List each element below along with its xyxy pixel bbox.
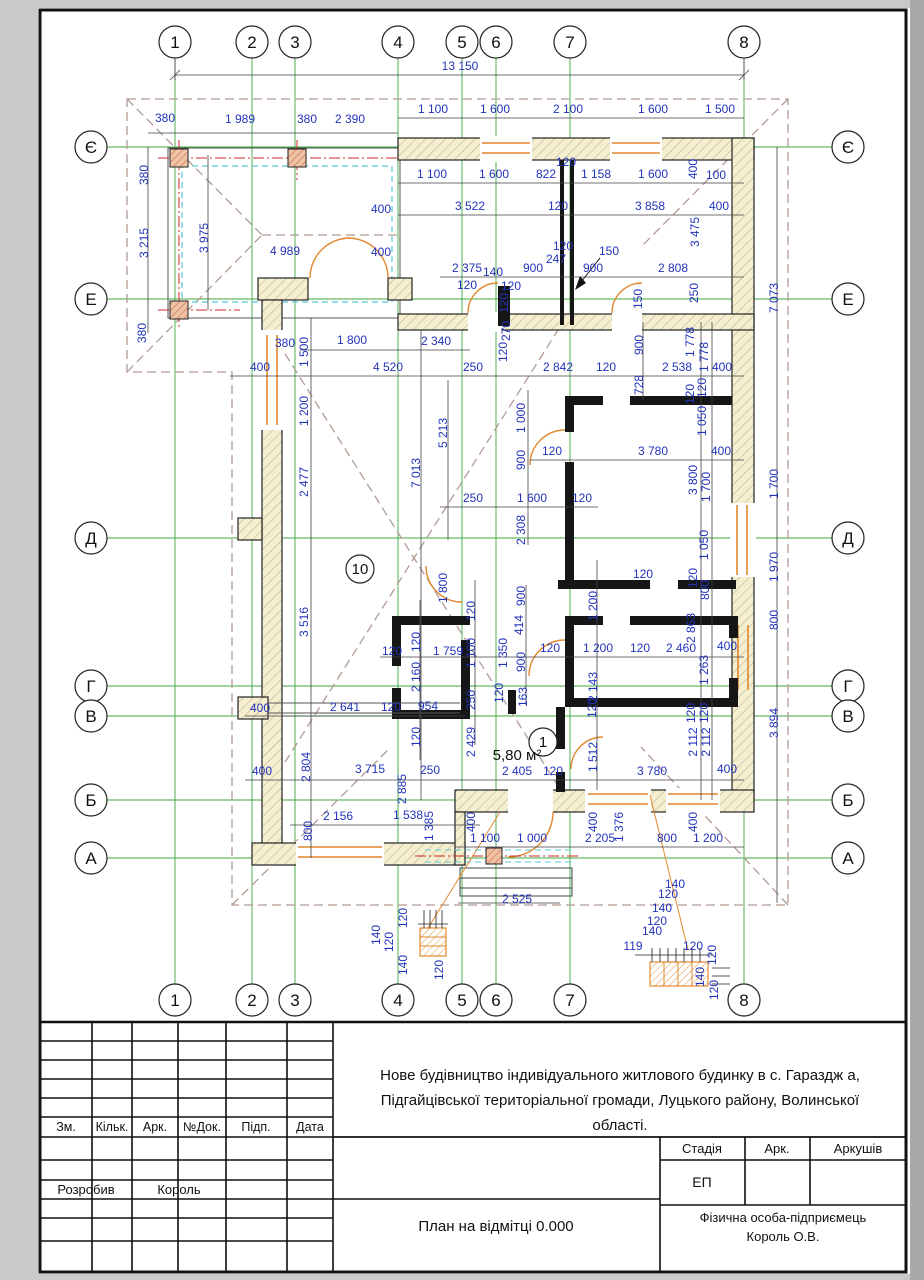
dimension-label: 1 100 — [418, 102, 448, 116]
dimension-label: 2 525 — [502, 892, 532, 906]
dimension-label: 1 759 — [433, 644, 463, 658]
company-line1: Фізична особа-підприємець — [700, 1210, 867, 1225]
dimension-label: 1 600 — [638, 102, 668, 116]
axis-label: Д — [85, 529, 97, 548]
dimension-label: 1 500 — [705, 102, 735, 116]
room-area-note: 5,80 м² — [493, 747, 542, 764]
room-number: 10 — [352, 561, 369, 578]
axis-label: А — [85, 849, 97, 868]
dimension-label: 3 516 — [297, 607, 311, 637]
dimension-label: 1 800 — [337, 333, 367, 347]
axis-label: 1 — [170, 991, 179, 1010]
dimension-label: 2 160 — [409, 662, 423, 692]
dimension-label: 120 — [382, 644, 402, 658]
dimension-label: 2 863 — [684, 613, 698, 643]
dimension-label: 1 158 — [581, 167, 611, 181]
dimension-label: 7 013 — [409, 458, 423, 488]
dimension-label: 1 385 — [422, 811, 436, 841]
dimension-label: 400 — [586, 812, 600, 832]
axis-label: 8 — [739, 991, 748, 1010]
dimension-label: 800 — [657, 831, 677, 845]
dimension-label: 247 — [546, 252, 566, 266]
dimension-label: 954 — [418, 699, 438, 713]
dimension-label: 2 538 — [662, 360, 692, 374]
dimension-label: 120 — [695, 378, 709, 398]
dimension-label: 140 — [396, 955, 410, 975]
dimension-label: 2 340 — [421, 334, 451, 348]
dimension-label: 3 894 — [767, 708, 781, 738]
dimension-label: 900 — [523, 261, 543, 275]
dimension-label: 400 — [686, 159, 700, 179]
dimension-label: 400 — [371, 245, 391, 259]
axis-label: Б — [842, 791, 853, 810]
dimension-label: 3 858 — [635, 199, 665, 213]
dimension-label: 400 — [250, 701, 270, 715]
dimension-label: 3 475 — [688, 217, 702, 247]
dimension-label: 2 429 — [464, 727, 478, 757]
axis-label: 1 — [170, 33, 179, 52]
axis-label: 6 — [491, 991, 500, 1010]
dimension-label: 3 780 — [638, 444, 668, 458]
porch-axes — [415, 848, 580, 864]
dimension-label: 400 — [371, 202, 391, 216]
dimension-label: 2 375 — [452, 261, 482, 275]
dimension-label: 120 — [596, 360, 616, 374]
dimension-label: 1 970 — [767, 552, 781, 582]
dimension-label: 1 512 — [586, 742, 600, 772]
dimension-label: 400 — [717, 639, 737, 653]
tb-developed-value: Король — [157, 1182, 201, 1197]
dimension-label: 13 150 — [442, 59, 479, 73]
dimension-label: 120 — [572, 491, 592, 505]
dimension-label: 2 842 — [543, 360, 573, 374]
dimension-label: 120 — [630, 641, 650, 655]
dimension-label: 400 — [717, 762, 737, 776]
dimension-label: 140 — [652, 901, 672, 915]
dimension-label: 120 — [497, 293, 511, 313]
dimension-label: 3 780 — [637, 764, 667, 778]
dimension-label: 800 — [767, 610, 781, 630]
dimension-label: 2 641 — [330, 700, 360, 714]
drawing-title: План на відмітці 0.000 — [418, 1218, 573, 1235]
dimension-label: 1 000 — [517, 831, 547, 845]
dimension-label: 250 — [463, 491, 483, 505]
dimension-label: 120 — [684, 703, 698, 723]
dimension-label: 120 — [585, 698, 599, 718]
dimension-label: 900 — [632, 335, 646, 355]
dimension-label: 1 350 — [496, 638, 510, 668]
company-line2: Король О.В. — [747, 1229, 820, 1244]
project-title-line3: області. — [592, 1117, 647, 1134]
dimension-label: 5 213 — [436, 418, 450, 448]
axis-label: В — [85, 707, 96, 726]
axis-label: Д — [842, 529, 854, 548]
dimension-label: 2 804 — [299, 752, 313, 782]
tb-developed-label: Розробив — [57, 1182, 114, 1197]
dimension-label: 2 156 — [323, 809, 353, 823]
axis-label: Е — [842, 290, 853, 309]
axis-label: 6 — [491, 33, 500, 52]
axis-label: 4 — [393, 33, 402, 52]
dimension-label: 400 — [686, 812, 700, 832]
dimension-label: 400 — [711, 444, 731, 458]
tb-header-pidp: Підп. — [241, 1120, 270, 1134]
dimension-label: 3 800 — [686, 465, 700, 495]
tb-sheet-label: Арк. — [764, 1141, 789, 1156]
dimension-label: 1 800 — [436, 573, 450, 603]
dimension-label: 1 538 — [393, 808, 423, 822]
dimension-label: 120 — [492, 683, 506, 703]
axis-label: 7 — [565, 991, 574, 1010]
dimension-label: 2 390 — [335, 112, 365, 126]
dimension-label: 1 000 — [514, 403, 528, 433]
project-title-line1: Нове будівництво індивідуального житлово… — [380, 1067, 860, 1084]
axis-label: 8 — [739, 33, 748, 52]
dimension-label: 4 989 — [270, 244, 300, 258]
dimension-label: 1 700 — [767, 469, 781, 499]
dimension-label: 2 100 — [553, 102, 583, 116]
axis-label: 2 — [247, 991, 256, 1010]
dimension-label: 163 — [516, 687, 530, 707]
axis-label: Е — [85, 290, 96, 309]
axis-label: 5 — [457, 991, 466, 1010]
dimension-label: 1 050 — [697, 530, 711, 560]
dimension-label: 120 — [633, 567, 653, 581]
dimension-label: 1 989 — [225, 112, 255, 126]
dimension-label: 2 885 — [395, 774, 409, 804]
tb-stage-label: Стадія — [682, 1141, 722, 1156]
dimension-label: 900 — [514, 652, 528, 672]
dimension-label: 120 — [409, 632, 423, 652]
dimension-label: 120 — [543, 764, 563, 778]
dimension-label: 120 — [697, 703, 711, 723]
dimension-label: 1 600 — [479, 167, 509, 181]
dimension-label: 120 — [556, 155, 576, 169]
dimension-label: 900 — [583, 261, 603, 275]
dimension-label: 380 — [135, 323, 149, 343]
dimension-label: 1 376 — [612, 812, 626, 842]
axis-label: 2 — [247, 33, 256, 52]
dimension-label: 2 112 — [686, 727, 700, 756]
dimension-label: 380 — [155, 111, 175, 125]
axis-label: В — [842, 707, 853, 726]
dimension-label: 900 — [514, 450, 528, 470]
floor-plan-svg: 1122334455667788ЄЄЕЕДДГГВВББАА13 1503801… — [0, 0, 924, 1280]
dimension-label: 1 600 — [638, 167, 668, 181]
dimension-label: 140 — [369, 925, 383, 945]
dimension-label: 140 — [483, 265, 503, 279]
dimension-label: 250 — [687, 283, 701, 303]
axis-label: Є — [842, 138, 854, 157]
axis-label: Г — [86, 677, 95, 696]
dimension-label: 120 — [553, 239, 573, 253]
dimension-label: 728 — [632, 375, 646, 395]
axis-label: А — [842, 849, 854, 868]
dimension-label: 2 112 — [699, 727, 713, 756]
dimension-label: 3 975 — [197, 223, 211, 253]
tb-header-data: Дата — [296, 1120, 324, 1134]
dimension-label: 1 200 — [297, 396, 311, 426]
dimension-label: 900 — [514, 586, 528, 606]
project-title-line2: Підгайцівської територіальної громади, Л… — [381, 1092, 860, 1109]
dimension-label: 120 — [705, 945, 719, 965]
dimension-label: 1 500 — [297, 337, 311, 367]
dimension-label: 1 050 — [695, 406, 709, 436]
tb-sheets-label: Аркушів — [834, 1141, 883, 1156]
dimension-label: 120 — [432, 960, 446, 980]
dimension-label: 1 200 — [583, 641, 613, 655]
dimension-label: 150 — [599, 244, 619, 258]
dimension-label: 120 — [658, 887, 678, 901]
dimension-label: 2 808 — [658, 261, 688, 275]
dimension-label: 1 200 — [586, 591, 600, 621]
dimension-label: 400 — [464, 812, 478, 832]
porch-column — [486, 848, 502, 864]
dimension-label: 1 200 — [693, 831, 723, 845]
dimension-label: 4 520 — [373, 360, 403, 374]
dimension-label: 120 — [381, 700, 401, 714]
tb-header-zm: Зм. — [56, 1120, 76, 1134]
dimension-label: 120 — [707, 980, 721, 1000]
dimension-label: 119 — [623, 939, 642, 953]
dimension-label: 270 — [499, 321, 513, 341]
dimension-label: 140 — [693, 967, 707, 987]
dimension-label: 1 263 — [697, 655, 711, 685]
dimension-label: 1 600 — [480, 102, 510, 116]
dimension-label: 380 — [137, 165, 151, 185]
dimension-label: 120 — [540, 641, 560, 655]
dimension-label: 822 — [536, 167, 556, 181]
dimension-label: 250 — [464, 690, 478, 710]
drawing-sheet: 1122334455667788ЄЄЕЕДДГГВВББАА13 1503801… — [0, 0, 924, 1280]
dimension-label: 7 073 — [767, 283, 781, 313]
dimension-label: 120 — [464, 601, 478, 621]
dimension-label: 380 — [297, 112, 317, 126]
dimension-label: 800 — [301, 821, 315, 841]
dimension-label: 3 522 — [455, 199, 485, 213]
axis-label: 3 — [290, 991, 299, 1010]
axis-label: 4 — [393, 991, 402, 1010]
dimension-label: 1 100 — [417, 167, 447, 181]
dimension-label: 400 — [712, 360, 732, 374]
dimension-label: 2 308 — [514, 515, 528, 545]
dimension-label: 1 100 — [470, 831, 500, 845]
dimension-label: 120 — [548, 199, 568, 213]
dimension-label: 100 — [706, 168, 726, 182]
axis-label: 5 — [457, 33, 466, 52]
axis-label: Г — [843, 677, 852, 696]
dimension-label: 1 600 — [517, 491, 547, 505]
dimension-label: 400 — [250, 360, 270, 374]
dimension-label: 2 477 — [297, 467, 311, 497]
axis-label: Б — [85, 791, 96, 810]
dimension-label: 150 — [631, 289, 645, 309]
dimension-label: 120 — [542, 444, 562, 458]
tb-header-ark: Арк. — [143, 1120, 167, 1134]
tb-header-kilk: Кільк. — [96, 1120, 129, 1134]
dimension-label: 120 — [409, 727, 423, 747]
tb-header-ndok: №Док. — [183, 1120, 221, 1134]
dimension-label: 120 — [382, 932, 396, 952]
dimension-label: 120 — [396, 908, 410, 928]
axis-label: 7 — [565, 33, 574, 52]
dimension-label: 120 — [457, 278, 477, 292]
dimension-label: 1 778 — [683, 327, 697, 357]
dimension-label: 2 205 — [585, 831, 615, 845]
dimension-label: 380 — [275, 336, 295, 350]
dimension-label: 2 143 — [586, 672, 600, 702]
dimension-label: 250 — [420, 763, 440, 777]
axis-label: 3 — [290, 33, 299, 52]
dimension-label: 1 778 — [697, 342, 711, 372]
dimension-label: 2 460 — [666, 641, 696, 655]
dimension-label: 1 700 — [699, 472, 713, 502]
dimension-label: 120 — [683, 939, 703, 953]
dimension-label: 120 — [501, 279, 521, 293]
dimension-label: 140 — [642, 924, 662, 938]
dimension-label: 2 405 — [502, 764, 532, 778]
dimension-label: 3 715 — [355, 762, 385, 776]
axis-label: Є — [85, 138, 97, 157]
dimension-label: 400 — [252, 764, 272, 778]
dimension-label: 1 100 — [464, 638, 478, 668]
dimension-label: 414 — [512, 615, 526, 635]
dimension-label: 3 215 — [137, 228, 151, 258]
dimension-label: 800 — [698, 580, 712, 600]
dimension-label: 250 — [463, 360, 483, 374]
dimension-label: 120 — [496, 342, 510, 362]
dimension-label: 400 — [709, 199, 729, 213]
tb-stage-value: ЕП — [692, 1174, 711, 1190]
